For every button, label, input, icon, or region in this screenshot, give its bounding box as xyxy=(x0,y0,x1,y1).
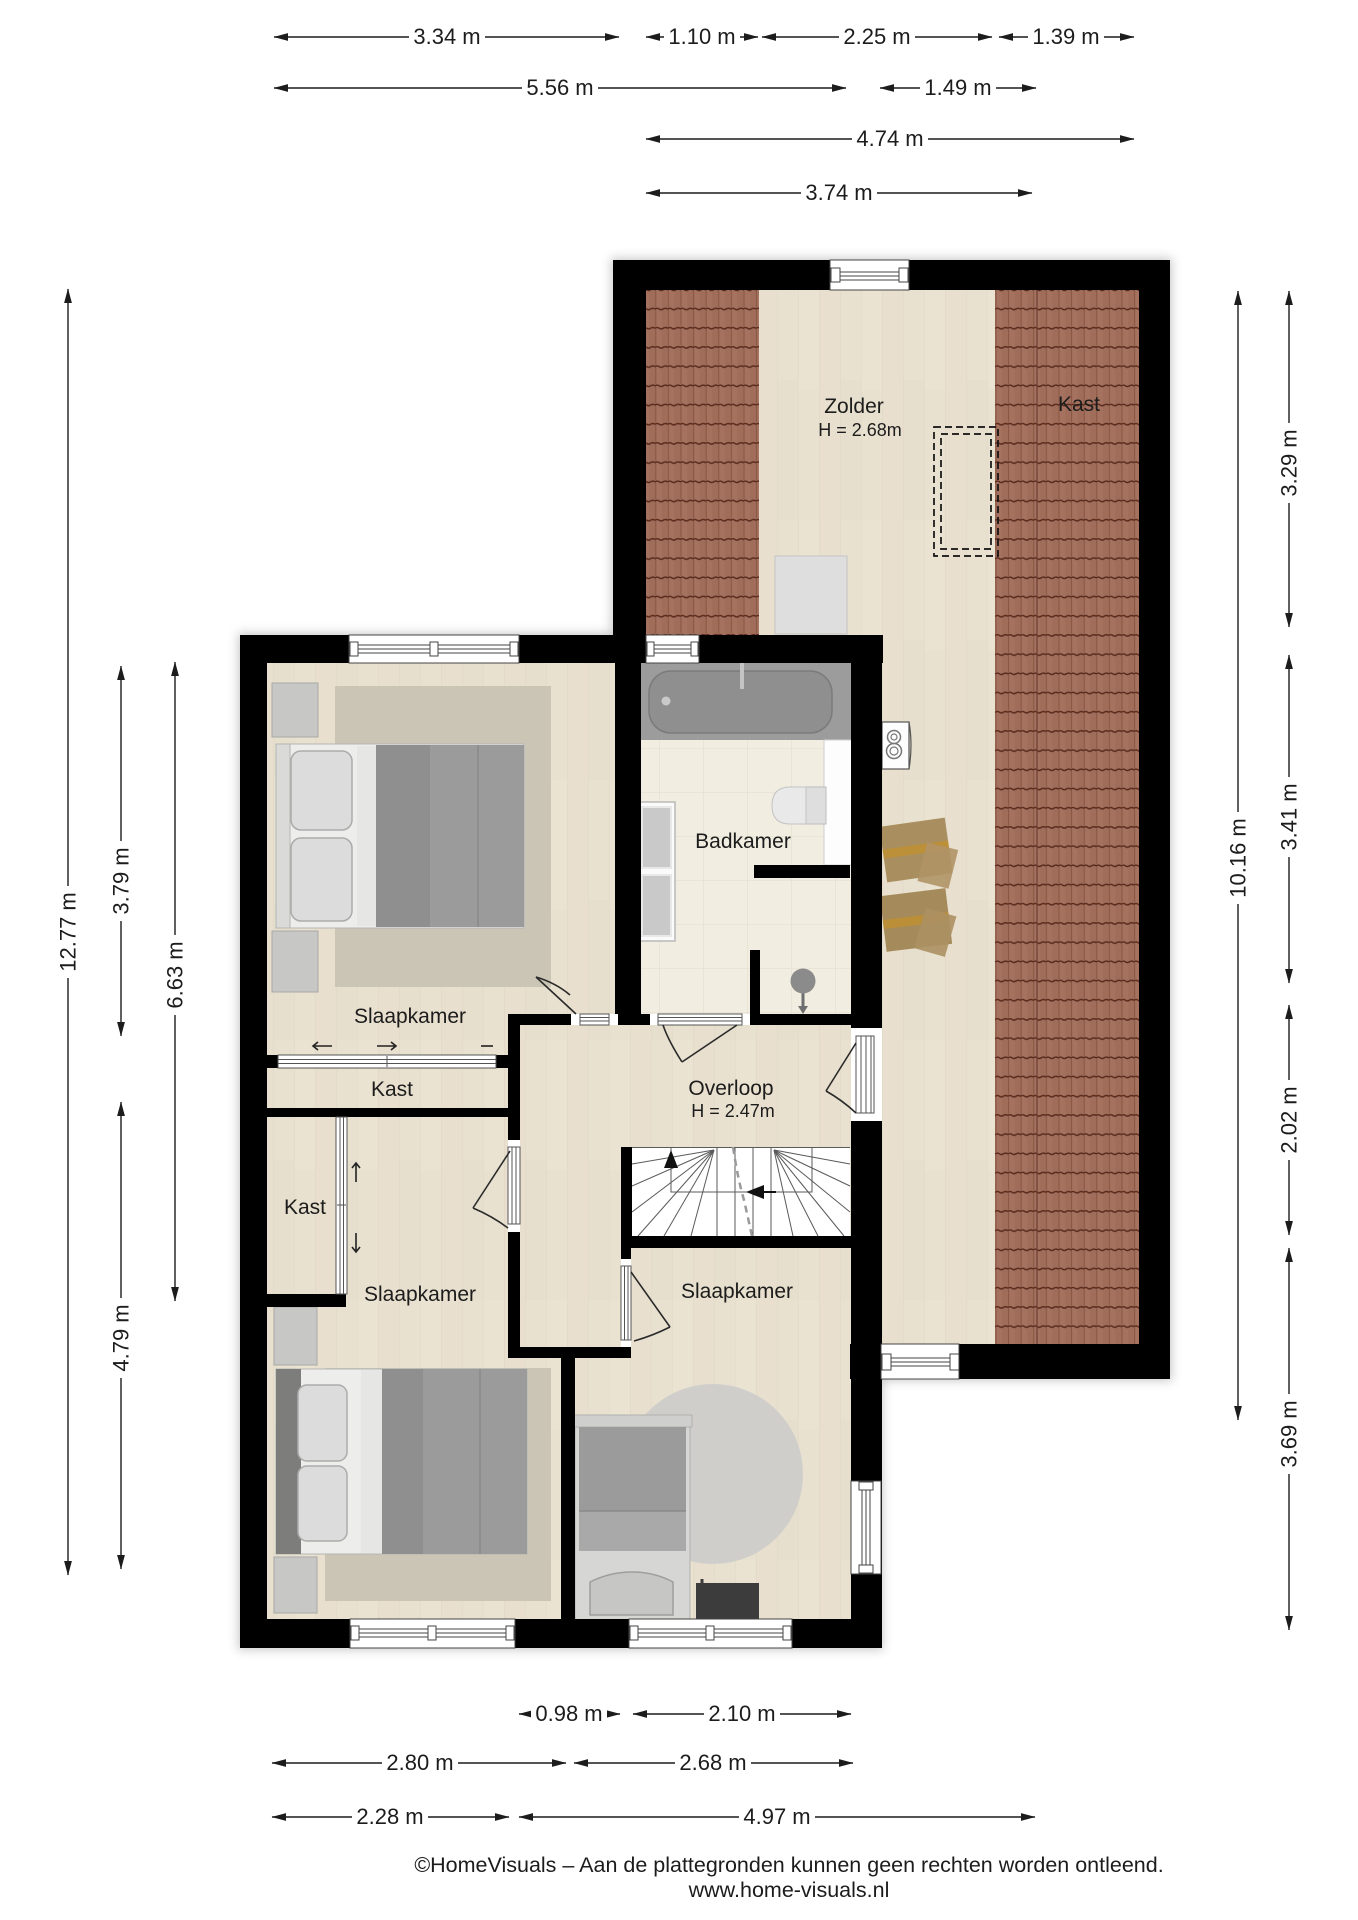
svg-text:3.69 m: 3.69 m xyxy=(1277,1400,1302,1467)
svg-text:3.41 m: 3.41 m xyxy=(1277,783,1302,850)
svg-text:6.63 m: 6.63 m xyxy=(163,941,188,1008)
svg-text:12.77 m: 12.77 m xyxy=(56,892,81,972)
svg-text:Zolder: Zolder xyxy=(824,395,884,418)
svg-text:2.68 m: 2.68 m xyxy=(679,1750,746,1775)
svg-text:3.29 m: 3.29 m xyxy=(1277,429,1302,496)
svg-text:Kast: Kast xyxy=(371,1078,413,1101)
svg-text:1.10 m: 1.10 m xyxy=(668,24,735,49)
svg-text:Slaapkamer: Slaapkamer xyxy=(354,1005,466,1028)
svg-text:Overloop: Overloop xyxy=(688,1077,773,1100)
svg-text:2.25 m: 2.25 m xyxy=(843,24,910,49)
svg-text:2.10 m: 2.10 m xyxy=(708,1701,775,1726)
svg-text:Kast: Kast xyxy=(284,1196,326,1219)
svg-text:4.79 m: 4.79 m xyxy=(109,1304,134,1371)
svg-text:H = 2.47m: H = 2.47m xyxy=(691,1101,775,1121)
svg-text:2.80 m: 2.80 m xyxy=(386,1750,453,1775)
svg-text:©HomeVisuals – Aan de plattegr: ©HomeVisuals – Aan de plattegronden kunn… xyxy=(414,1853,1163,1877)
svg-text:3.79 m: 3.79 m xyxy=(109,847,134,914)
svg-text:H = 2.68m: H = 2.68m xyxy=(818,420,902,440)
svg-text:2.02 m: 2.02 m xyxy=(1277,1086,1302,1153)
svg-text:3.74 m: 3.74 m xyxy=(805,180,872,205)
svg-text:3.34 m: 3.34 m xyxy=(413,24,480,49)
svg-text:4.74 m: 4.74 m xyxy=(856,126,923,151)
svg-text:2.28 m: 2.28 m xyxy=(356,1804,423,1829)
svg-text:10.16 m: 10.16 m xyxy=(1226,818,1251,898)
svg-text:0.98 m: 0.98 m xyxy=(535,1701,602,1726)
svg-text:5.56 m: 5.56 m xyxy=(526,75,593,100)
svg-text:1.39 m: 1.39 m xyxy=(1032,24,1099,49)
svg-text:Kast: Kast xyxy=(1058,393,1100,416)
svg-text:Slaapkamer: Slaapkamer xyxy=(681,1280,793,1303)
svg-text:www.home-visuals.nl: www.home-visuals.nl xyxy=(688,1878,890,1902)
svg-text:4.97 m: 4.97 m xyxy=(743,1804,810,1829)
svg-text:Slaapkamer: Slaapkamer xyxy=(364,1283,476,1306)
svg-text:1.49 m: 1.49 m xyxy=(924,75,991,100)
svg-text:Badkamer: Badkamer xyxy=(695,830,791,853)
